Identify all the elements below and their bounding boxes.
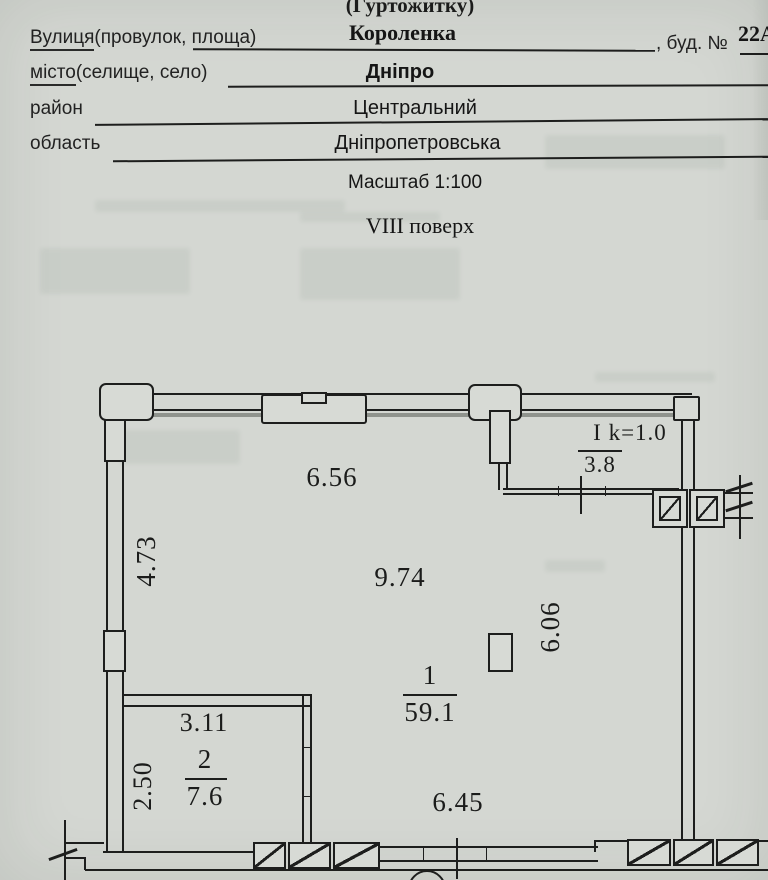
wall-line — [124, 694, 312, 696]
room2-number: 2 — [183, 744, 227, 775]
room1-number: 1 — [403, 660, 457, 691]
wall-line — [124, 705, 312, 707]
hatched-sill — [673, 839, 714, 866]
wall-line — [498, 463, 500, 490]
wall-line — [693, 418, 695, 842]
wall-line — [310, 694, 312, 852]
wall-line — [380, 846, 598, 848]
hatched-sill — [716, 839, 759, 866]
dim-room1-length: 9.74 — [368, 562, 432, 593]
hatched-sill — [288, 842, 331, 869]
mullion-notch — [301, 392, 327, 404]
dim-room2-width: 3.11 — [172, 708, 236, 738]
dim-left-wall: 4.73 — [131, 521, 161, 601]
hatched-column — [659, 496, 681, 521]
dim-bottom: 6.45 — [424, 787, 492, 818]
wall-pier — [103, 630, 126, 672]
room2-area: 7.6 — [183, 781, 227, 812]
loggia-label: I k=1.0 — [580, 420, 680, 446]
dim-top-window: 6.56 — [300, 462, 364, 493]
wall-line — [380, 860, 598, 862]
dimension-tick — [456, 838, 458, 879]
tick-mark — [558, 486, 559, 496]
tick-mark — [486, 846, 487, 861]
dimension-arrow — [48, 848, 77, 861]
wall-line — [302, 694, 304, 852]
wall-line — [594, 840, 596, 852]
room1-area: 59.1 — [397, 697, 463, 728]
tick-mark — [605, 486, 606, 496]
wall-pier — [489, 410, 511, 464]
hatched-sill — [253, 842, 286, 869]
panel-joint — [302, 747, 312, 748]
room-label-divider — [185, 778, 227, 780]
wall-line — [64, 842, 104, 844]
wall-line — [64, 857, 86, 859]
dim-room1-width: 6.06 — [535, 587, 565, 667]
wall-line — [150, 409, 678, 411]
hatched-column — [696, 496, 718, 521]
wall-line — [594, 840, 628, 842]
dim-room2-depth: 2.50 — [128, 746, 158, 826]
hatched-sill — [627, 839, 671, 866]
floor-plan-drawing: 6.56 9.74 4.73 6.06 6.45 3.11 2.50 1 59.… — [0, 0, 768, 880]
wall-line — [758, 840, 768, 842]
room-label-divider — [403, 694, 457, 696]
loggia-area: 3.8 — [578, 452, 622, 478]
wall-line — [506, 463, 508, 490]
hatched-sill — [333, 842, 380, 869]
wall-line — [681, 418, 683, 842]
stamp-circle-partial — [408, 870, 446, 880]
column-cap — [99, 383, 154, 421]
panel-joint — [302, 796, 312, 797]
window-glazing-line — [150, 413, 678, 417]
wall-line — [103, 851, 253, 853]
column-cap — [673, 396, 700, 421]
vent-shaft — [488, 633, 513, 672]
scanned-floor-plan-page: (Гуртожитку) Вулиця(провулок, площа) Кор… — [0, 0, 768, 880]
wall-line — [150, 393, 692, 395]
dimension-tick — [580, 476, 582, 514]
tick-mark — [423, 846, 424, 861]
dimension-extension-line — [64, 820, 66, 880]
